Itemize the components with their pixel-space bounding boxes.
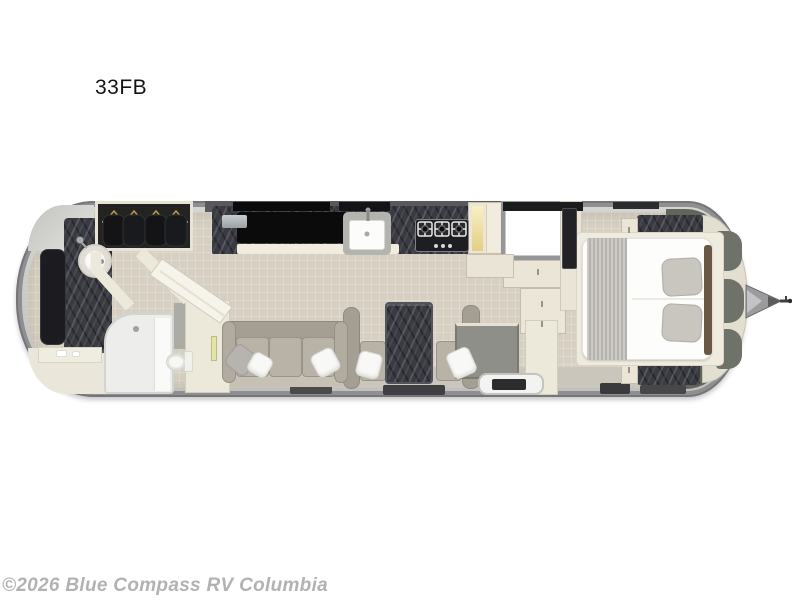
sofa-cushion	[269, 337, 302, 377]
bed-pillow	[661, 257, 703, 297]
wardrobe-closet	[95, 201, 193, 251]
bedroom-tv	[562, 208, 577, 269]
rear-tv	[40, 249, 66, 345]
overhead-cabinet-dark	[339, 202, 390, 211]
pantry-light	[472, 206, 483, 251]
floorplan-model-label: 33FB	[95, 76, 147, 100]
floor-mat	[640, 385, 686, 394]
coffee-maker	[222, 215, 247, 228]
toilet-tank	[184, 351, 193, 372]
vanity-sink	[78, 244, 112, 278]
floorplan	[16, 201, 792, 397]
roof-vent	[613, 202, 659, 209]
sofa-armrest	[334, 321, 348, 383]
kitchen-sink	[343, 212, 391, 255]
shower	[104, 313, 174, 394]
pantry	[468, 202, 502, 254]
pantry-door	[486, 204, 500, 252]
bed-pillow	[661, 303, 703, 343]
floor-mat	[383, 385, 445, 395]
headboard	[704, 245, 712, 355]
dinette-table	[385, 302, 433, 384]
pantry-cabinet	[466, 254, 514, 278]
page: 33FB	[0, 0, 800, 600]
sink-basin	[349, 220, 385, 250]
shower-door	[154, 318, 170, 391]
sink-drain	[99, 259, 104, 264]
overhead-cabinet-dark	[233, 202, 330, 211]
cooktop	[415, 219, 469, 252]
bed-runner	[587, 238, 627, 360]
mattress-seam	[632, 298, 712, 300]
sofa-base	[226, 377, 342, 387]
shelf-item	[56, 350, 67, 357]
shelf-item	[72, 351, 80, 357]
step-mat	[492, 379, 526, 390]
tv-console	[237, 212, 360, 243]
hitch-icon	[746, 285, 792, 318]
wall-mirror	[211, 336, 217, 361]
floor-mat	[600, 383, 630, 394]
rear-shelf	[38, 347, 102, 363]
toilet-bowl	[166, 353, 186, 371]
entry-step	[478, 373, 544, 395]
watermark: ©2026 Blue Compass RV Columbia	[2, 575, 328, 597]
